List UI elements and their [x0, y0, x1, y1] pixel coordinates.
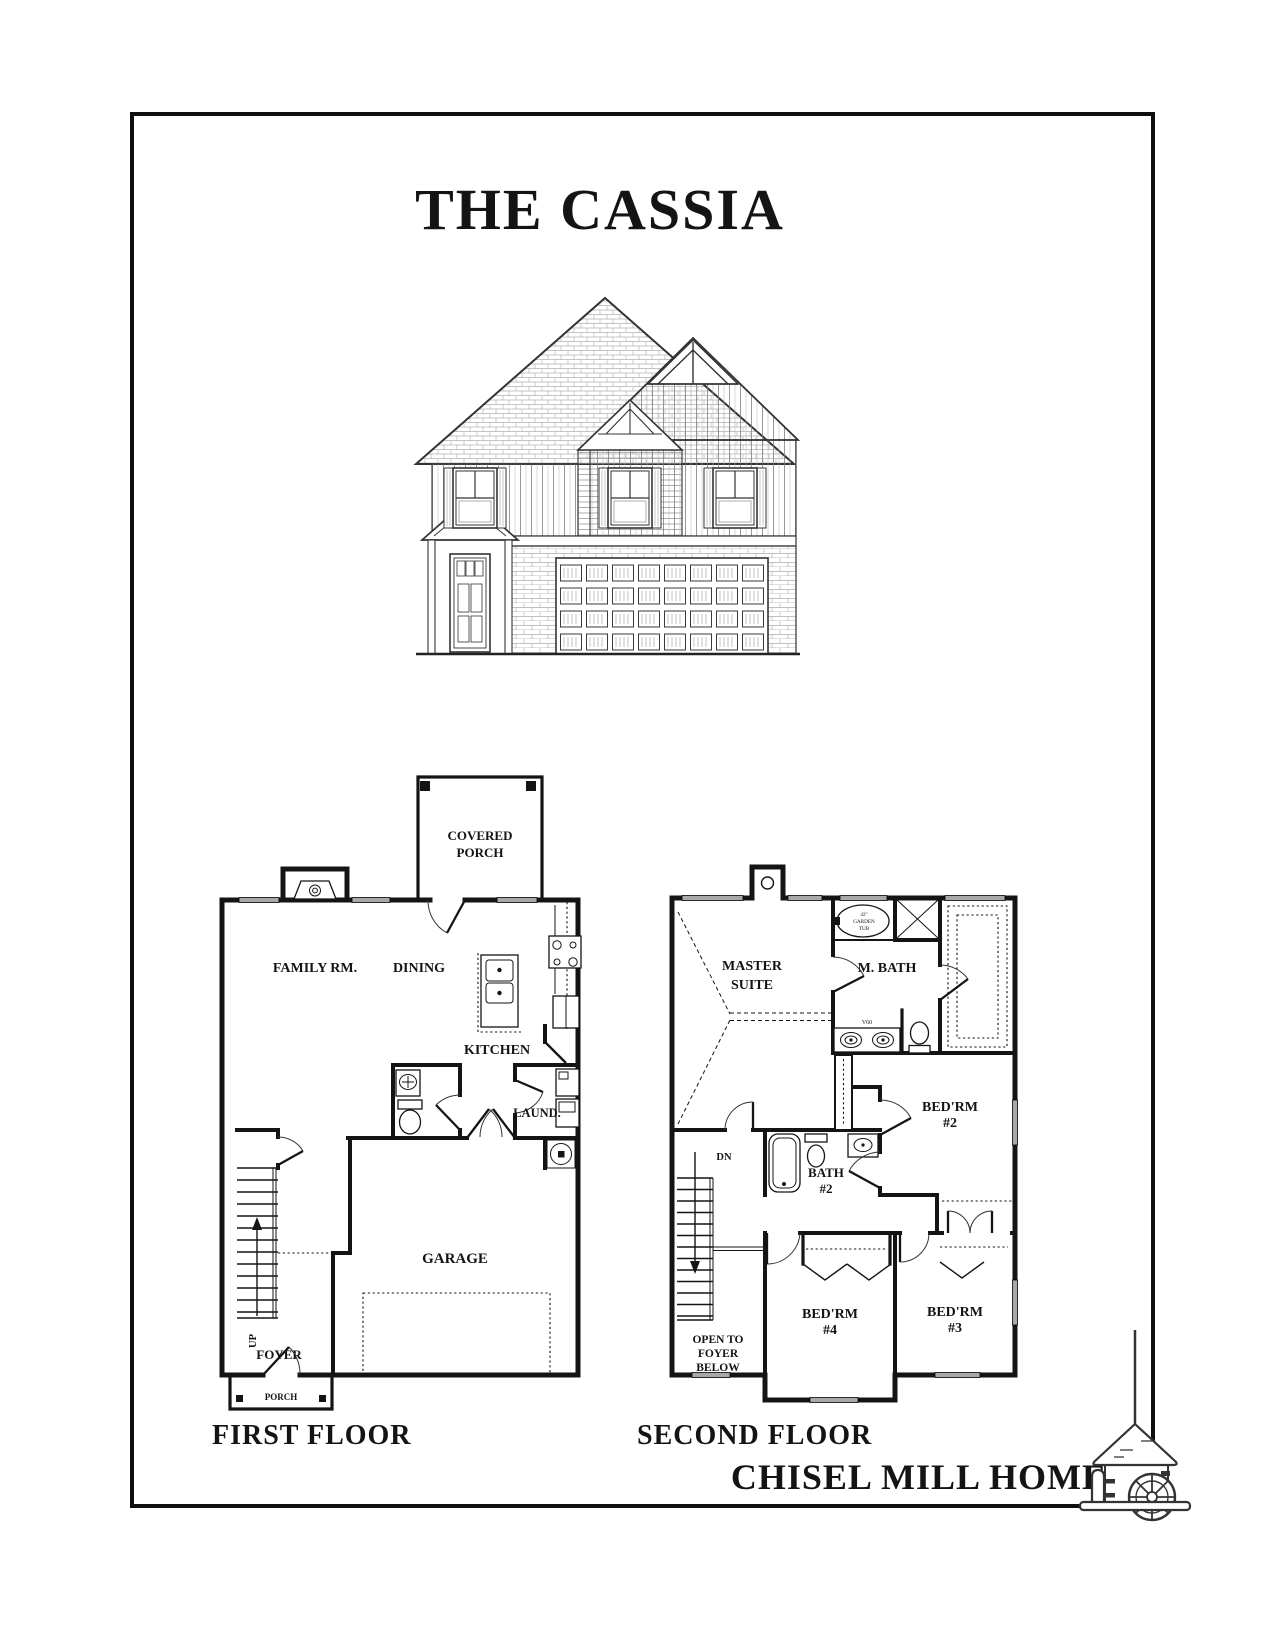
second-floor-plan: MASTER SUITE M. BATH 42" GARDEN TUB V60 … [630, 800, 1025, 1425]
front-door [450, 554, 490, 652]
refrigerator-icon [553, 996, 579, 1028]
label-open-foyer-2: FOYER [698, 1348, 739, 1360]
label-open-foyer-1: OPEN TO [692, 1334, 743, 1346]
label-covered-porch-1: COVERED [447, 828, 512, 843]
label-stairs-down: DN [716, 1152, 732, 1163]
up-arrow [252, 1217, 262, 1230]
label-family-room: FAMILY RM. [273, 961, 357, 976]
label-garage: GARAGE [422, 1251, 488, 1267]
water-wheel [1129, 1474, 1175, 1520]
label-bedroom2-1: BED'RM [922, 1100, 978, 1115]
label-porch: PORCH [265, 1392, 298, 1402]
master-closet [948, 906, 1007, 1047]
kitchen-fixtures [478, 902, 581, 1032]
garage-door-outline [363, 1293, 550, 1373]
label-laundry: LAUND. [513, 1106, 561, 1120]
label-bedroom3-2: #3 [948, 1321, 962, 1336]
garage-door [556, 558, 768, 654]
water-heater-icon [547, 1140, 575, 1168]
house-elevation-drawing [408, 288, 808, 666]
bedroom2-closet [942, 1201, 1012, 1233]
down-arrow [690, 1261, 700, 1274]
tray-ceiling-lines [678, 912, 831, 1124]
fireplace [283, 869, 347, 900]
label-tub-3: TUB [859, 926, 870, 932]
label-covered-porch-2: PORCH [457, 845, 504, 860]
label-master-2: SUITE [731, 978, 773, 993]
label-stairs-up: UP [248, 1333, 259, 1348]
second-floor-title: SECOND FLOOR [637, 1420, 872, 1452]
label-dining: DINING [393, 961, 445, 976]
stove-icon [549, 936, 581, 968]
linen-closet [835, 1055, 852, 1130]
label-bedroom3-1: BED'RM [927, 1305, 983, 1320]
double-vanity-icon [834, 1028, 900, 1052]
sink-icon [396, 1070, 420, 1096]
powder-room-fixtures [396, 1070, 422, 1134]
stairs-down [677, 1152, 765, 1320]
label-bedroom2-2: #2 [943, 1116, 957, 1131]
page-title: THE CASSIA [340, 176, 860, 243]
label-master-1: MASTER [722, 959, 783, 974]
label-bedroom4-2: #4 [823, 1323, 837, 1338]
stairs-up [237, 1168, 278, 1318]
label-foyer: FOYER [256, 1347, 302, 1362]
label-open-foyer-3: BELOW [696, 1362, 740, 1374]
first-floor-plan: COVERED PORCH FAMILY RM. DINING KITCHEN … [215, 740, 585, 1412]
watermill-logo-icon [1020, 1325, 1185, 1525]
sheet: { "page": { "title": "THE CASSIA" }, "fl… [0, 0, 1275, 1650]
toilet-icon [909, 1022, 930, 1053]
label-kitchen: KITCHEN [464, 1043, 530, 1058]
label-tub-1: 42" [860, 912, 867, 918]
bedroom3-closet [940, 1247, 1008, 1278]
label-bath2-1: BATH [808, 1165, 844, 1180]
island-with-sink [478, 953, 521, 1032]
bedroom4-closet [803, 1233, 891, 1280]
shower-icon [897, 900, 938, 938]
master-bath-fixtures [833, 900, 938, 1053]
toilet-icon [398, 1100, 422, 1134]
label-vanity: V60 [862, 1020, 872, 1026]
label-master-bath: M. BATH [858, 961, 917, 976]
label-bedroom4-1: BED'RM [802, 1307, 858, 1322]
label-tub-2: GARDEN [853, 919, 875, 925]
first-floor-title: FIRST FLOOR [212, 1420, 412, 1452]
label-bath2-2: #2 [820, 1181, 833, 1196]
chimney-bump [752, 867, 783, 898]
upper-windows [444, 468, 766, 528]
